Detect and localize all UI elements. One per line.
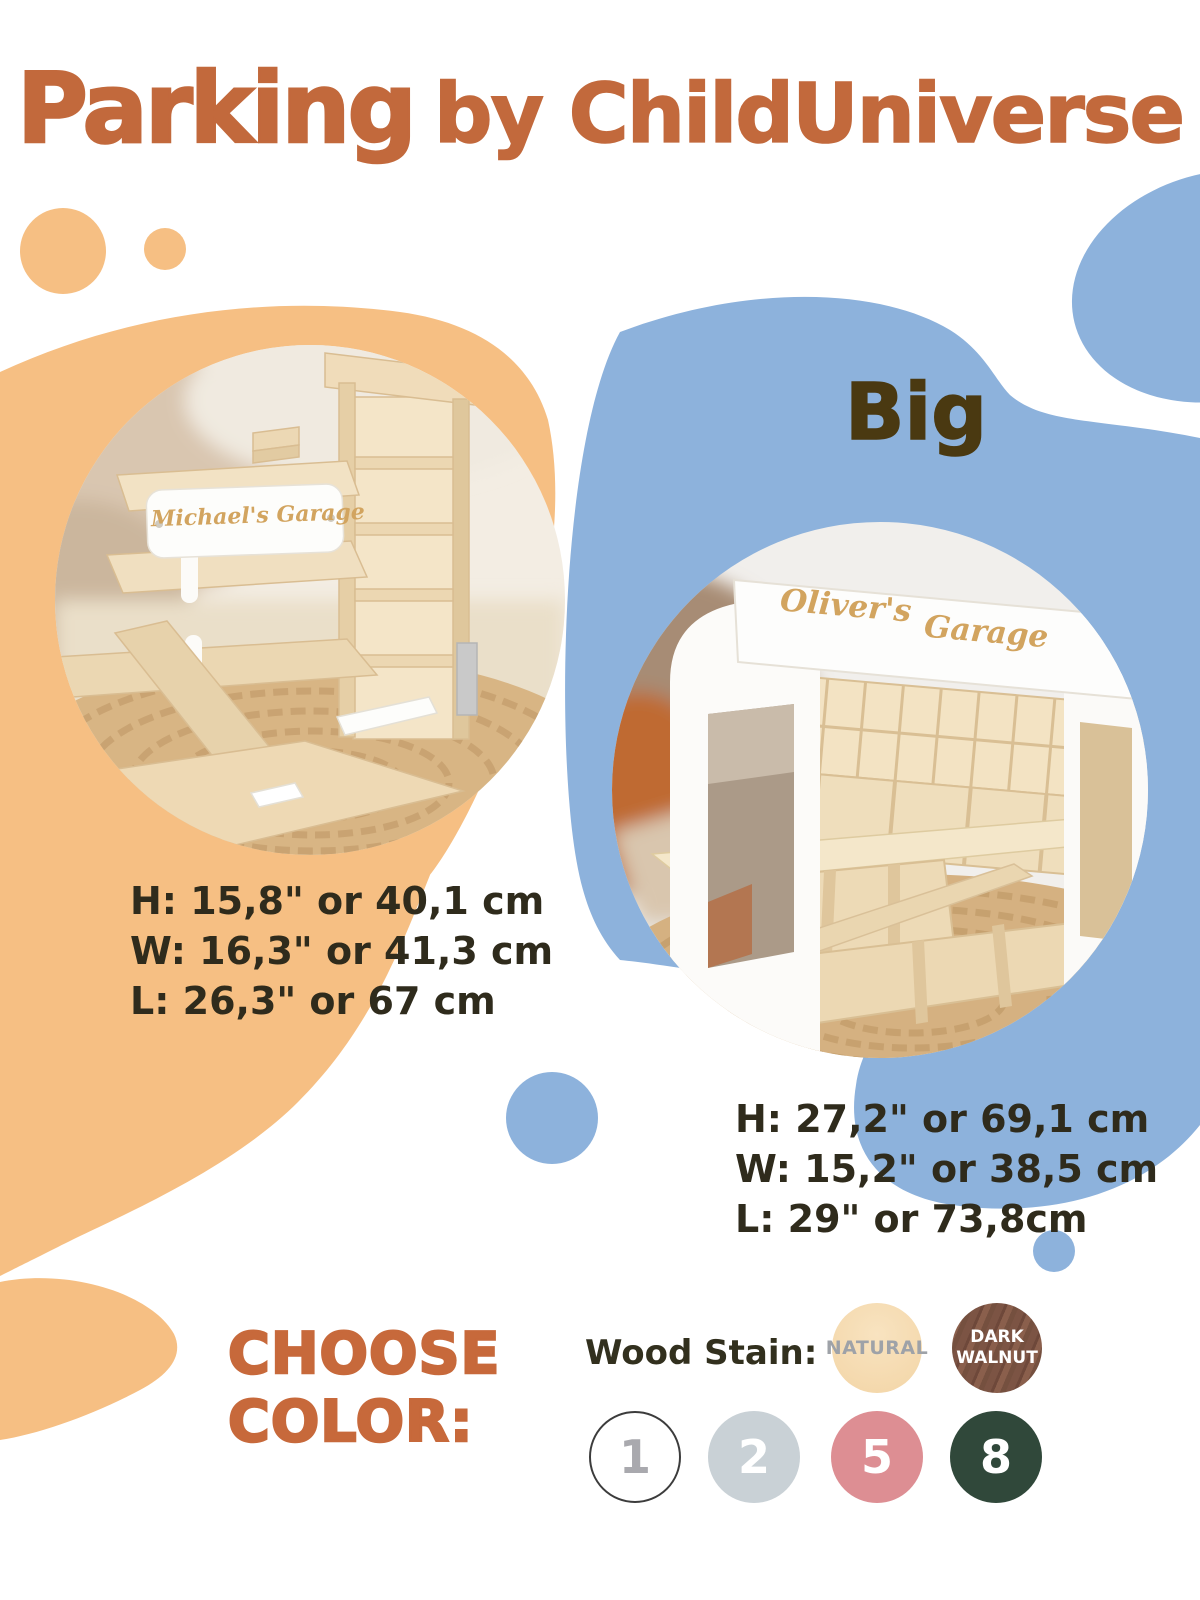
small-garage-illustration xyxy=(55,345,565,855)
photo-big-garage: Oliver's Garage xyxy=(612,522,1148,1058)
wood-stain-label: Wood Stain: xyxy=(585,1333,817,1373)
small-dimension-width: W: 16,3" or 41,3 cm xyxy=(130,926,553,976)
big-size-label: Big xyxy=(845,368,987,458)
big-dimension-width: W: 15,2" or 38,5 cm xyxy=(735,1144,1158,1194)
choose-color-heading-line1: CHOOSE xyxy=(228,1320,500,1388)
big-dimension-length: L: 29" or 73,8cm xyxy=(735,1194,1158,1244)
small-garage-dimensions: H: 15,8" or 40,1 cm W: 16,3" or 41,3 cm … xyxy=(130,876,553,1026)
color-option-2: 2 xyxy=(708,1411,800,1503)
photo-small-garage: Michael's Garage xyxy=(55,345,565,855)
stain-swatch-natural: NATURAL xyxy=(832,1303,922,1393)
stain-swatch-dark-walnut: DARK WALNUT xyxy=(952,1303,1042,1393)
choose-color-heading: CHOOSE COLOR: xyxy=(228,1320,500,1456)
color-option-8: 8 xyxy=(950,1411,1042,1503)
big-garage-dimensions: H: 27,2" or 69,1 cm W: 15,2" or 38,5 cm … xyxy=(735,1094,1158,1244)
page-title: Parkingby ChildUniverse xyxy=(0,52,1200,165)
choose-color-heading-line2: COLOR: xyxy=(228,1388,500,1456)
page-title-product: Parking xyxy=(17,52,414,165)
small-dimension-height: H: 15,8" or 40,1 cm xyxy=(130,876,553,926)
big-dimension-height: H: 27,2" or 69,1 cm xyxy=(735,1094,1158,1144)
product-infographic: Parkingby ChildUniverse xyxy=(0,0,1200,1600)
color-option-5: 5 xyxy=(831,1411,923,1503)
small-dimension-length: L: 26,3" or 67 cm xyxy=(130,976,553,1026)
page-title-brand: by ChildUniverse xyxy=(434,67,1183,162)
color-option-1: 1 xyxy=(589,1411,681,1503)
